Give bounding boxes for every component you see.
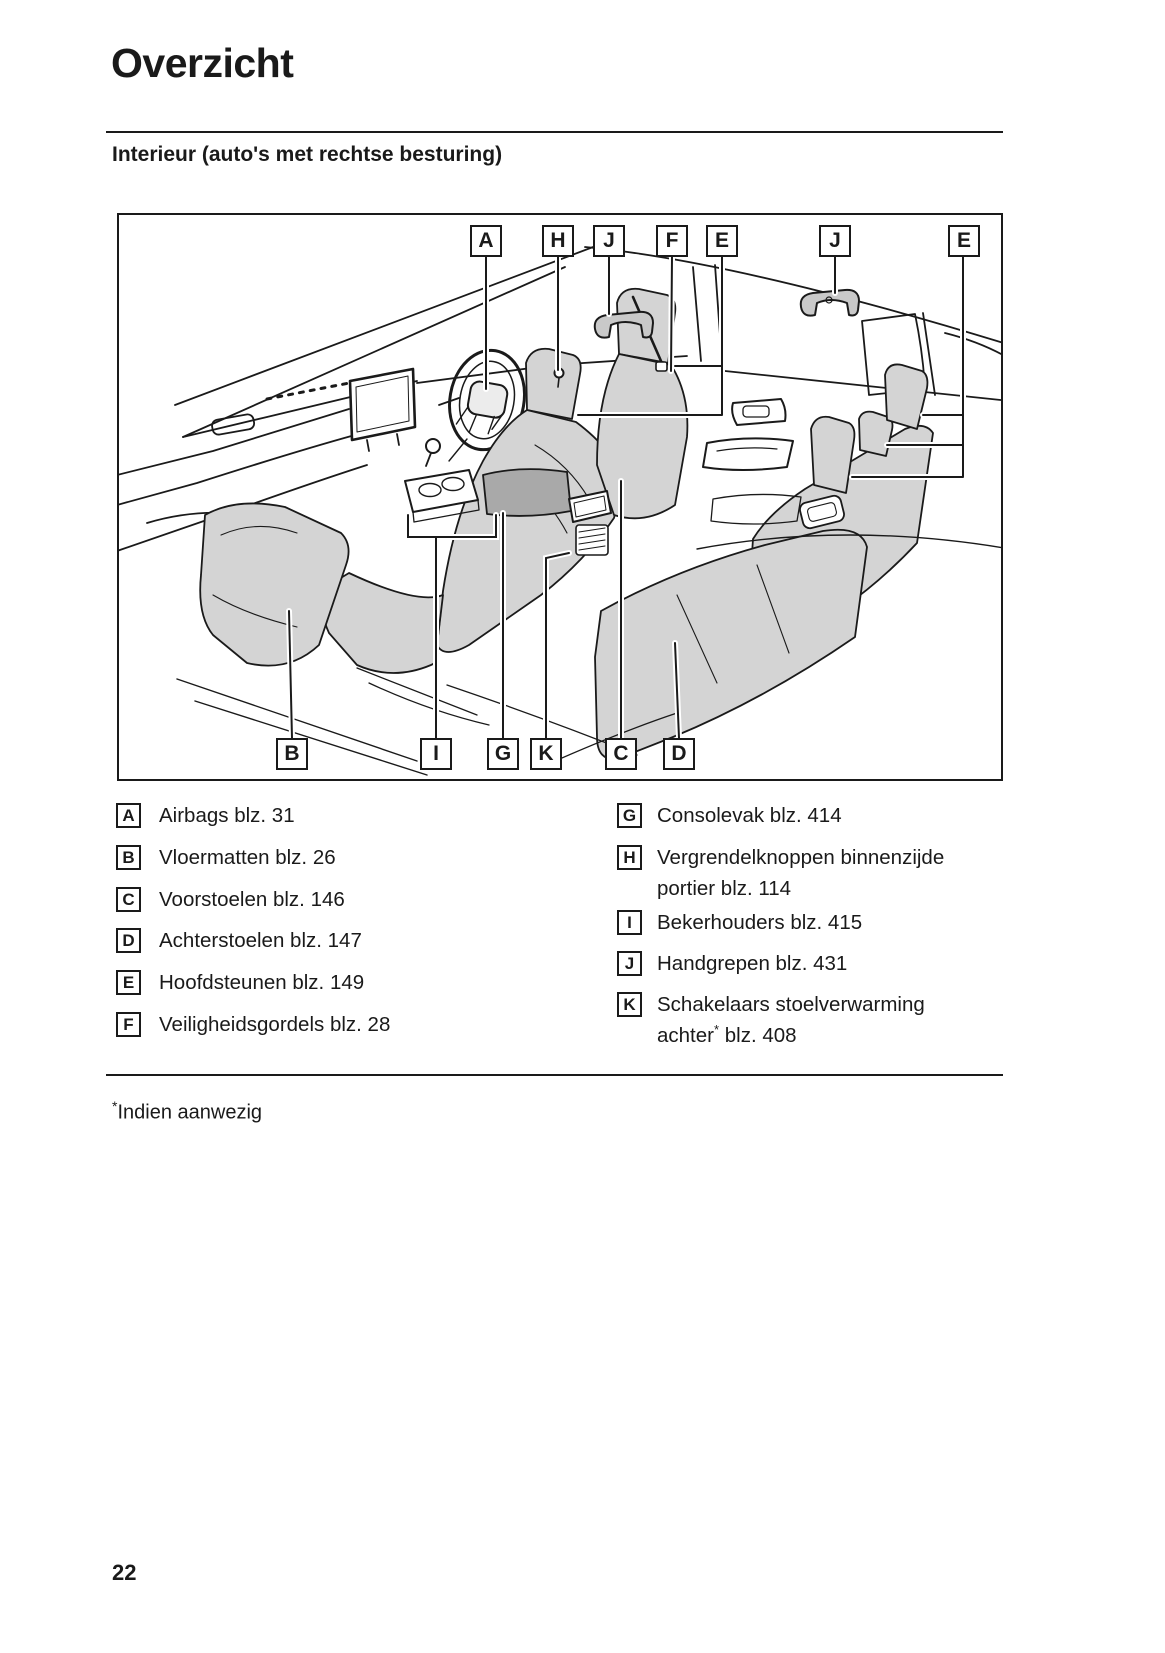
legend-row-B: B Vloermatten blz. 26 bbox=[116, 842, 336, 873]
page-title: Overzicht bbox=[111, 40, 293, 87]
interior-diagram: A H J F E J E B I G K C D bbox=[117, 213, 1003, 781]
section-subtitle: Interieur (auto's met rechtse besturing) bbox=[112, 143, 502, 167]
callout-F: F bbox=[656, 225, 688, 257]
legend-row-I: I Bekerhouders blz. 415 bbox=[617, 907, 862, 938]
legend-row-K: K Schakelaars stoelverwarming achter* bl… bbox=[617, 989, 987, 1051]
legend-key-D: D bbox=[116, 928, 141, 953]
callout-J-rear: J bbox=[819, 225, 851, 257]
callout-J-front: J bbox=[593, 225, 625, 257]
bottom-divider bbox=[106, 1074, 1003, 1076]
legend-row-C: C Voorstoelen blz. 146 bbox=[116, 884, 345, 915]
legend-key-K: K bbox=[617, 992, 642, 1017]
legend-text-F: Veiligheidsgordels blz. 28 bbox=[159, 1009, 390, 1040]
legend-text-H: Vergrendelknoppen binnenzijde portier bl… bbox=[657, 842, 987, 904]
legend-key-A: A bbox=[116, 803, 141, 828]
footnote: *Indien aanwezig bbox=[112, 1098, 262, 1125]
top-divider bbox=[106, 131, 1003, 133]
legend-row-E: E Hoofdsteunen blz. 149 bbox=[116, 967, 364, 998]
legend-key-C: C bbox=[116, 887, 141, 912]
callout-H: H bbox=[542, 225, 574, 257]
legend-text-A: Airbags blz. 31 bbox=[159, 800, 295, 831]
legend-key-E: E bbox=[116, 970, 141, 995]
legend-text-K-post: blz. 408 bbox=[719, 1024, 797, 1047]
legend-text-E: Hoofdsteunen blz. 149 bbox=[159, 967, 364, 998]
page-number: 22 bbox=[112, 1560, 136, 1586]
legend-row-G: G Consolevak blz. 414 bbox=[617, 800, 842, 831]
footnote-text: Indien aanwezig bbox=[117, 1102, 262, 1124]
legend-key-H: H bbox=[617, 845, 642, 870]
legend-text-C: Voorstoelen blz. 146 bbox=[159, 884, 345, 915]
callout-E-front: E bbox=[706, 225, 738, 257]
callout-C: C bbox=[605, 738, 637, 770]
legend-text-G: Consolevak blz. 414 bbox=[657, 800, 842, 831]
callout-K: K bbox=[530, 738, 562, 770]
legend-key-B: B bbox=[116, 845, 141, 870]
legend-text-J: Handgrepen blz. 431 bbox=[657, 948, 847, 979]
callout-E-rear: E bbox=[948, 225, 980, 257]
legend-key-G: G bbox=[617, 803, 642, 828]
car-interior-illustration bbox=[117, 213, 1003, 781]
legend-row-F: F Veiligheidsgordels blz. 28 bbox=[116, 1009, 390, 1040]
legend-row-H: H Vergrendelknoppen binnenzijde portier … bbox=[617, 842, 987, 904]
legend-key-J: J bbox=[617, 951, 642, 976]
legend-text-K: Schakelaars stoelverwarming achter* blz.… bbox=[657, 989, 987, 1051]
legend-text-I: Bekerhouders blz. 415 bbox=[657, 907, 862, 938]
manual-page: Overzicht Interieur (auto's met rechtse … bbox=[0, 0, 1165, 1653]
callout-G: G bbox=[487, 738, 519, 770]
legend-text-B: Vloermatten blz. 26 bbox=[159, 842, 336, 873]
legend-row-D: D Achterstoelen blz. 147 bbox=[116, 925, 362, 956]
legend-key-I: I bbox=[617, 910, 642, 935]
callout-A: A bbox=[470, 225, 502, 257]
legend-row-A: A Airbags blz. 31 bbox=[116, 800, 295, 831]
legend-text-D: Achterstoelen blz. 147 bbox=[159, 925, 362, 956]
callout-B: B bbox=[276, 738, 308, 770]
callout-D: D bbox=[663, 738, 695, 770]
callout-I: I bbox=[420, 738, 452, 770]
legend-row-J: J Handgrepen blz. 431 bbox=[617, 948, 847, 979]
legend-key-F: F bbox=[116, 1012, 141, 1037]
